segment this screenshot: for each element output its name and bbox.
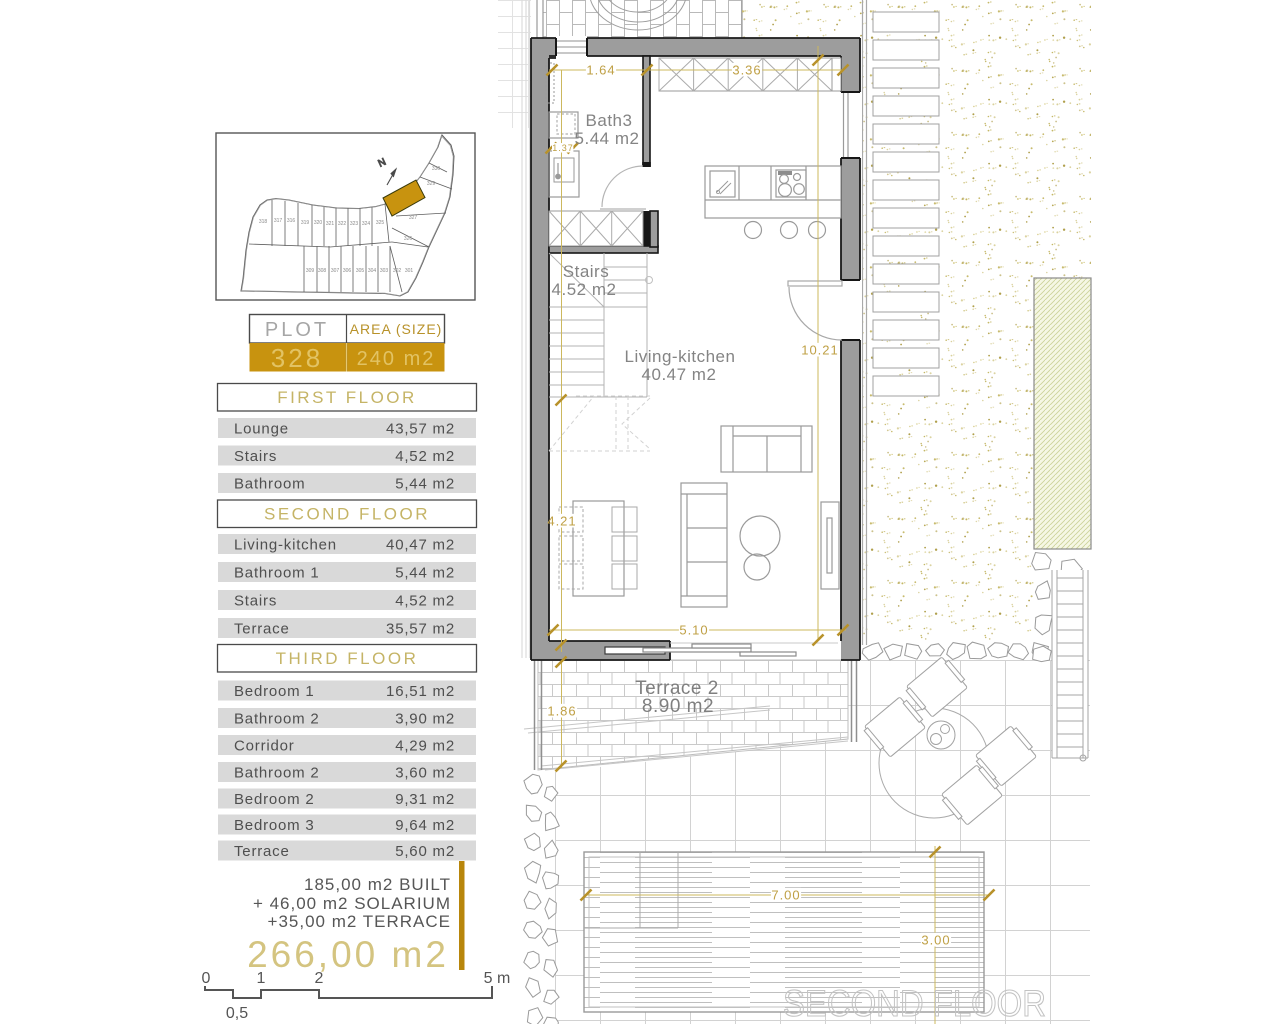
svg-text:3,90 m2: 3,90 m2 (395, 711, 455, 728)
svg-text:316: 316 (287, 218, 296, 224)
svg-text:3,60 m2: 3,60 m2 (395, 765, 455, 782)
svg-text:323: 323 (350, 221, 359, 227)
svg-text:Stairs: Stairs (234, 448, 277, 465)
svg-text:Bath3: Bath3 (586, 111, 633, 130)
svg-text:1.37: 1.37 (552, 143, 574, 153)
svg-text:1.64: 1.64 (586, 63, 615, 78)
svg-text:309: 309 (306, 268, 315, 274)
svg-text:40,47 m2: 40,47 m2 (386, 537, 455, 554)
svg-text:SECOND FLOOR: SECOND FLOOR (264, 505, 430, 524)
svg-text:301: 301 (405, 268, 414, 274)
svg-text:308: 308 (318, 268, 327, 274)
svg-text:SECOND FLOOR: SECOND FLOOR (783, 983, 1046, 1024)
svg-text:PLOT: PLOT (265, 319, 329, 341)
svg-text:Stairs: Stairs (563, 262, 609, 281)
svg-text:240 m2: 240 m2 (357, 348, 436, 370)
svg-text:Bedroom 3: Bedroom 3 (234, 817, 315, 834)
svg-text:326: 326 (404, 236, 413, 242)
svg-text:329: 329 (427, 181, 436, 187)
svg-text:+35,00 m2 TERRACE: +35,00 m2 TERRACE (268, 912, 451, 931)
svg-text:1.86: 1.86 (547, 704, 576, 719)
svg-text:327: 327 (409, 215, 418, 221)
svg-text:303: 303 (380, 268, 389, 274)
svg-text:Corridor: Corridor (234, 738, 295, 755)
svg-text:4.21: 4.21 (547, 514, 576, 529)
svg-text:2: 2 (315, 970, 324, 987)
svg-text:307: 307 (331, 268, 340, 274)
svg-text:Bathroom: Bathroom (234, 476, 305, 493)
svg-text:Living-kitchen: Living-kitchen (625, 347, 736, 366)
svg-text:4,52 m2: 4,52 m2 (395, 448, 455, 465)
svg-text:5,44 m2: 5,44 m2 (395, 565, 455, 582)
svg-text:8.90 m2: 8.90 m2 (642, 696, 714, 717)
svg-text:Bedroom 2: Bedroom 2 (234, 791, 315, 808)
svg-text:185,00 m2 BUILT: 185,00 m2 BUILT (304, 875, 451, 894)
svg-text:FIRST FLOOR: FIRST FLOOR (277, 388, 417, 407)
svg-text:319: 319 (301, 220, 310, 226)
svg-text:304: 304 (368, 268, 377, 274)
svg-text:Bathroom 2: Bathroom 2 (234, 711, 320, 728)
svg-text:305: 305 (356, 268, 365, 274)
svg-text:5,44 m2: 5,44 m2 (395, 476, 455, 493)
svg-text:5 m: 5 m (484, 970, 511, 987)
svg-text:Stairs: Stairs (234, 593, 277, 610)
svg-text:5.44 m2: 5.44 m2 (575, 129, 640, 148)
svg-text:40.47 m2: 40.47 m2 (642, 365, 717, 384)
svg-text:4,52 m2: 4,52 m2 (395, 593, 455, 610)
svg-text:9,64 m2: 9,64 m2 (395, 817, 455, 834)
svg-text:Bedroom 1: Bedroom 1 (234, 683, 315, 700)
svg-text:Bathroom 1: Bathroom 1 (234, 565, 320, 582)
svg-text:Lounge: Lounge (234, 421, 289, 438)
svg-text:+ 46,00 m2 SOLARIUM: + 46,00 m2 SOLARIUM (253, 894, 451, 913)
svg-text:3.36: 3.36 (732, 63, 761, 78)
svg-text:3.00: 3.00 (921, 933, 950, 948)
svg-text:0,5: 0,5 (226, 1005, 248, 1022)
svg-text:325: 325 (376, 220, 385, 226)
svg-text:1: 1 (257, 970, 266, 987)
svg-text:330: 330 (432, 166, 441, 172)
svg-text:35,57 m2: 35,57 m2 (386, 621, 455, 638)
svg-text:7.00: 7.00 (771, 888, 800, 903)
svg-text:4.52 m2: 4.52 m2 (552, 280, 617, 299)
svg-text:306: 306 (343, 268, 352, 274)
svg-text:266,00 m2: 266,00 m2 (247, 934, 449, 975)
svg-text:302: 302 (393, 268, 402, 274)
svg-text:0: 0 (202, 970, 211, 987)
svg-text:5,60 m2: 5,60 m2 (395, 843, 455, 860)
svg-text:AREA (SIZE): AREA (SIZE) (350, 321, 443, 337)
svg-text:Living-kitchen: Living-kitchen (234, 537, 337, 554)
svg-text:321: 321 (326, 221, 335, 227)
svg-text:Terrace: Terrace (234, 843, 290, 860)
svg-text:THIRD FLOOR: THIRD FLOOR (276, 649, 419, 668)
svg-text:324: 324 (362, 221, 371, 227)
svg-text:322: 322 (338, 221, 347, 227)
svg-text:320: 320 (314, 220, 323, 226)
svg-text:317: 317 (274, 218, 283, 224)
svg-text:10.21: 10.21 (801, 343, 839, 358)
svg-text:Terrace: Terrace (234, 621, 290, 638)
svg-text:Bathroom 2: Bathroom 2 (234, 765, 320, 782)
svg-text:43,57 m2: 43,57 m2 (386, 421, 455, 438)
svg-text:16,51 m2: 16,51 m2 (386, 683, 455, 700)
svg-text:5.10: 5.10 (679, 623, 708, 638)
svg-text:318: 318 (259, 219, 268, 225)
svg-text:4,29 m2: 4,29 m2 (395, 738, 455, 755)
svg-text:9,31 m2: 9,31 m2 (395, 791, 455, 808)
svg-text:328: 328 (271, 343, 323, 373)
